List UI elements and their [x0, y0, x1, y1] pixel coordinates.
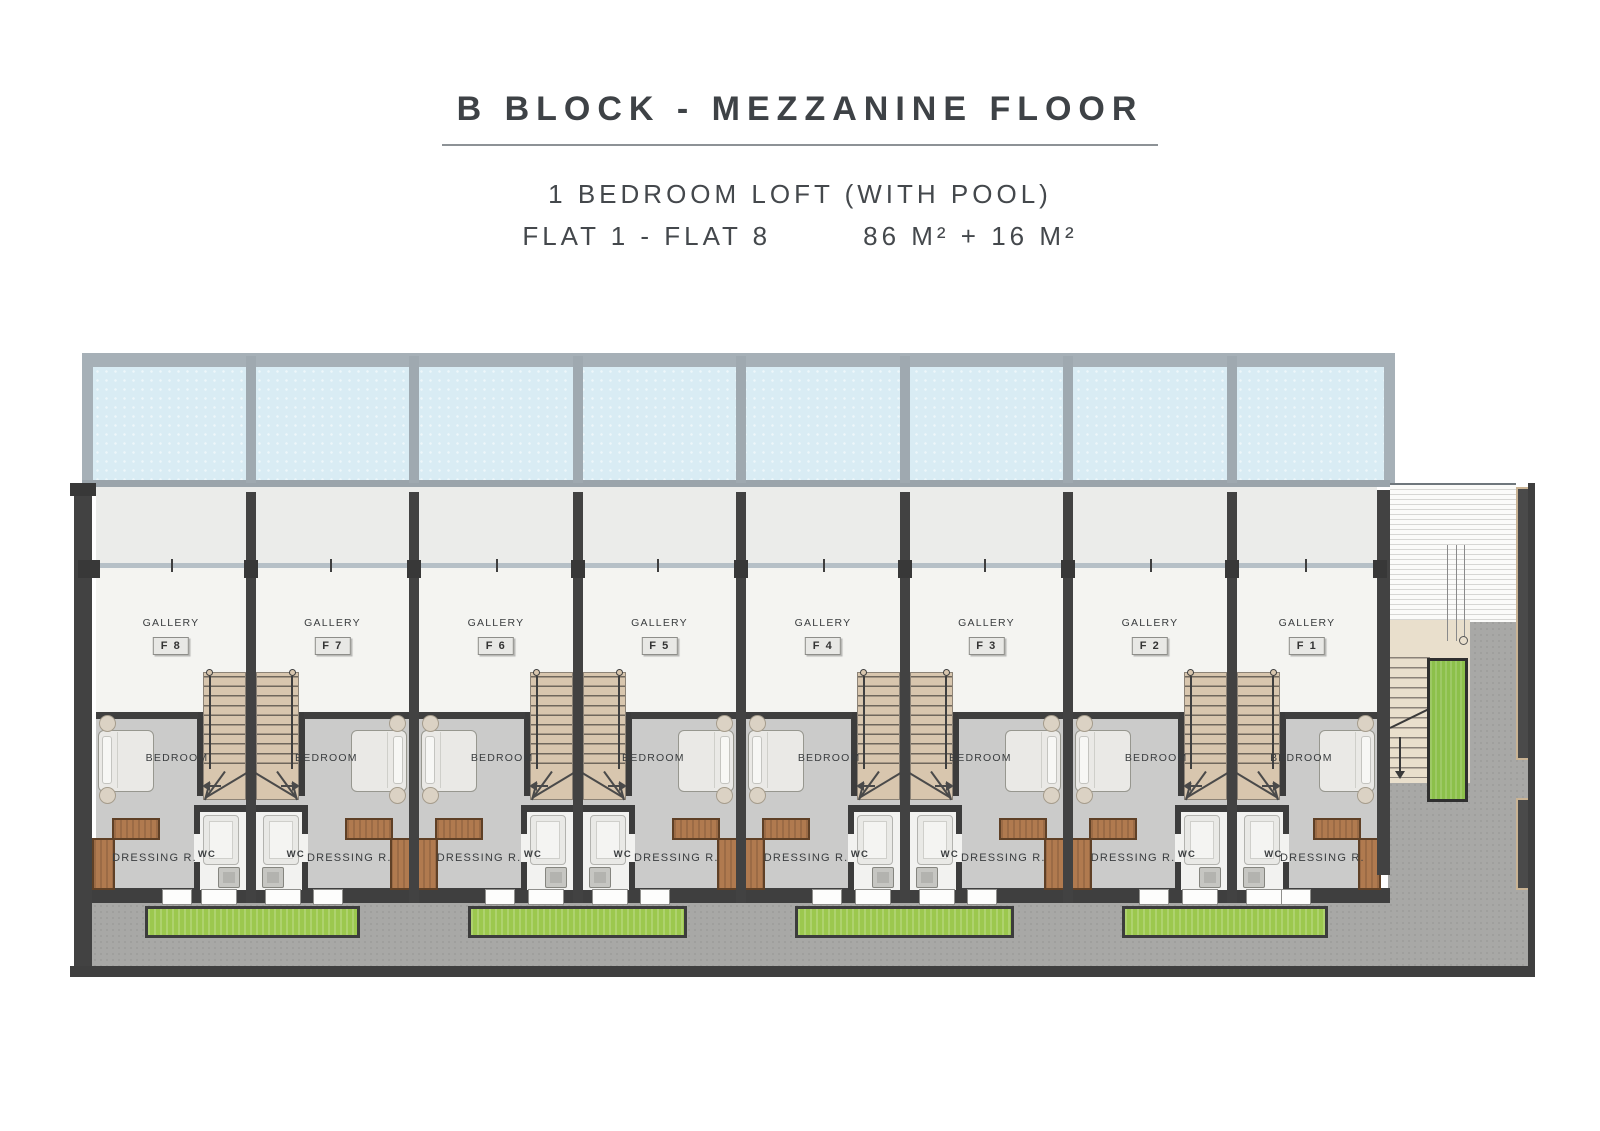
bed-pillow [1079, 736, 1089, 784]
stair-newel [616, 669, 623, 676]
dressing-label: DRESSING R. [437, 852, 522, 864]
stair-newel [1187, 669, 1194, 676]
bed-pillow [102, 736, 112, 784]
terrace-hatched [1390, 483, 1516, 622]
toilet [1243, 867, 1265, 888]
wc-wall-door-upper [629, 812, 635, 834]
glass-wall-post [1373, 560, 1387, 578]
unit-F1: GALLERYF 1BEDROOMDRESSING R.WC [1237, 487, 1377, 965]
wc-label: WC [524, 849, 542, 860]
wc-wall-door-upper [302, 812, 308, 834]
wc-room [256, 805, 308, 890]
flat-badge: F 1 [1289, 637, 1325, 655]
wc-wall-door-upper [848, 812, 854, 834]
party-wall [736, 492, 746, 903]
bedroom-label: BEDROOM [1270, 752, 1333, 764]
glass-wall-post [734, 560, 748, 578]
end-wall-right [1377, 490, 1390, 875]
window [1246, 889, 1282, 905]
unit-geometry [96, 487, 246, 965]
unit-stair [1237, 672, 1280, 800]
nightstand [422, 787, 439, 804]
floor-plan: GALLERYF 8BEDROOMDRESSING R.WCGALLERYF 7… [0, 0, 1600, 1131]
dressing-label: DRESSING R. [1091, 852, 1176, 864]
bedroom-label: BEDROOM [146, 752, 209, 764]
dressing-label: DRESSING R. [112, 852, 197, 864]
wc-label: WC [1264, 849, 1282, 860]
wardrobe-top [762, 818, 810, 840]
wc-wall-door-lower [1283, 862, 1289, 890]
wc-label: WC [198, 849, 216, 860]
unit-stair [857, 672, 900, 800]
window [528, 889, 564, 905]
bed-duvet-line [440, 732, 441, 788]
bed-duvet-line [1355, 732, 1356, 788]
glass-wall-tick [658, 559, 660, 572]
wc-label: WC [851, 849, 869, 860]
window [592, 889, 628, 905]
nightstand [1043, 787, 1060, 804]
bed-pillow [393, 736, 403, 784]
flat-badge: F 2 [1132, 637, 1168, 655]
bed-duvet-line [387, 732, 388, 788]
wardrobe-side [92, 838, 115, 890]
window [812, 889, 842, 905]
glass-wall-post [244, 560, 258, 578]
nightstand [1357, 787, 1374, 804]
stair-rail [536, 676, 538, 769]
unit-geometry [1073, 487, 1227, 965]
toilet [589, 867, 611, 888]
wc-wall-door-lower [194, 862, 200, 890]
pool-mullion [409, 356, 419, 483]
unit-F3: GALLERYF 3BEDROOMDRESSING R.WC [910, 487, 1063, 965]
window [313, 889, 343, 905]
wc-wall-top [583, 805, 635, 812]
unit-stair [1184, 672, 1227, 800]
boundary-right [1528, 483, 1535, 976]
party-wall [573, 492, 583, 903]
wc-wall-door-upper [521, 812, 527, 834]
bed-duvet-line [767, 732, 768, 788]
stair-newel [206, 669, 213, 676]
wc-wall-door-upper [194, 812, 200, 834]
toilet [218, 867, 240, 888]
bedroom-label: BEDROOM [798, 752, 861, 764]
stair-newel [860, 669, 867, 676]
flat-badge: F 3 [968, 637, 1004, 655]
glass-wall-tick [1305, 559, 1307, 572]
wc-wall-top [910, 805, 962, 812]
window [485, 889, 515, 905]
window [855, 889, 891, 905]
bedroom-label: BEDROOM [622, 752, 685, 764]
wc-wall-door-upper [956, 812, 962, 834]
unit-stair [910, 672, 953, 800]
boundary-bottom [70, 966, 1535, 977]
stair-arrow-head [1183, 781, 1191, 791]
pool-frame-left [82, 353, 93, 483]
pool-mullion [736, 356, 746, 483]
stair-rail [945, 676, 947, 769]
bedroom-label: BEDROOM [471, 752, 534, 764]
nightstand [99, 715, 116, 732]
wc-wall-top [1175, 805, 1227, 812]
wardrobe-top [112, 818, 160, 840]
unit-stair [256, 672, 299, 800]
wc-wall-door-lower [302, 862, 308, 890]
wc-wall-top [521, 805, 573, 812]
dressing-label: DRESSING R. [1280, 852, 1365, 864]
toilet-seat [594, 872, 606, 883]
bed-duvet-line [1041, 732, 1042, 788]
stair-newel [1270, 669, 1277, 676]
party-wall [1227, 492, 1237, 903]
wc-wall-top [848, 805, 900, 812]
nightstand [389, 787, 406, 804]
window [265, 889, 301, 905]
bed-pillow [752, 736, 762, 784]
stair-newel [289, 669, 296, 676]
nightstand [1357, 715, 1374, 732]
terrace-glass-wall [583, 563, 736, 568]
nightstand [1076, 715, 1093, 732]
bed-pillow [1361, 736, 1371, 784]
wc-wall-door-lower [956, 862, 962, 890]
window [967, 889, 997, 905]
glass-wall-post [1225, 560, 1239, 578]
glass-wall-tick [496, 559, 498, 572]
flat-badge: F 4 [805, 637, 841, 655]
bed [678, 730, 734, 792]
window [1139, 889, 1169, 905]
wardrobe-top [1313, 818, 1361, 840]
gallery-label: GALLERY [143, 617, 200, 629]
stair-detail-line [1447, 545, 1448, 641]
toilet [545, 867, 567, 888]
unit-F4: GALLERYF 4BEDROOMDRESSING R.WC [746, 487, 900, 965]
gallery-label: GALLERY [304, 617, 361, 629]
bed [351, 730, 407, 792]
stair-rail [291, 676, 293, 769]
nightstand [716, 715, 733, 732]
glass-wall-post [78, 560, 100, 578]
bed-duvet-line [1094, 732, 1095, 788]
gallery-label: GALLERY [958, 617, 1015, 629]
terrace-glass-wall [1237, 563, 1377, 568]
stair-newel [943, 669, 950, 676]
window [201, 889, 237, 905]
bed [748, 730, 804, 792]
dressing-label: DRESSING R. [764, 852, 849, 864]
dressing-label: DRESSING R. [307, 852, 392, 864]
bed-pillow [1047, 736, 1057, 784]
nightstand [749, 715, 766, 732]
wc-label: WC [614, 849, 632, 860]
toilet-seat [877, 872, 889, 883]
unit-stair [583, 672, 626, 800]
unit-geometry [583, 487, 736, 965]
stair-rail [863, 676, 865, 769]
wc-wall-top [1237, 805, 1289, 812]
toilet [1199, 867, 1221, 888]
wc-room [1175, 805, 1227, 890]
wardrobe-top [999, 818, 1047, 840]
wc-label: WC [287, 849, 305, 860]
outer-wall-left-cap [70, 483, 96, 496]
wardrobe-top [672, 818, 720, 840]
window [1182, 889, 1218, 905]
terrace-glass-wall [910, 563, 1063, 568]
flat-badge: F 8 [153, 637, 189, 655]
glass-wall-post [571, 560, 585, 578]
unit-F2: GALLERYF 2BEDROOMDRESSING R.WC [1073, 487, 1227, 965]
nightstand [716, 787, 733, 804]
bed-duvet-line [117, 732, 118, 788]
unit-geometry [256, 487, 409, 965]
window [1281, 889, 1311, 905]
dressing-label: DRESSING R. [634, 852, 719, 864]
nightstand [389, 715, 406, 732]
bedroom-label: BEDROOM [295, 752, 358, 764]
unit-geometry [910, 487, 1063, 965]
nightstand [422, 715, 439, 732]
wc-wall-top [256, 805, 308, 812]
wc-room [194, 805, 246, 890]
gallery-label: GALLERY [631, 617, 688, 629]
wc-room [848, 805, 900, 890]
stair-detail-line [1456, 545, 1457, 641]
window [640, 889, 670, 905]
flat-badge: F 7 [314, 637, 350, 655]
pool-mullion [1227, 356, 1237, 483]
unit-F8: GALLERYF 8BEDROOMDRESSING R.WC [96, 487, 246, 965]
unit-stair [530, 672, 573, 800]
pool-frame-right [1384, 353, 1395, 483]
glass-wall-post [898, 560, 912, 578]
stair-arrow-head [529, 781, 537, 791]
wardrobe-top [345, 818, 393, 840]
bed [1005, 730, 1061, 792]
unit-geometry [1237, 487, 1377, 965]
party-wall [246, 492, 256, 903]
wc-label: WC [941, 849, 959, 860]
party-wall [409, 492, 419, 903]
window [162, 889, 192, 905]
party-wall [1063, 492, 1073, 903]
wc-wall-door-lower [521, 862, 527, 890]
wc-wall-door-upper [1283, 812, 1289, 834]
toilet [872, 867, 894, 888]
wc-wall-door-lower [1175, 862, 1181, 890]
bed-pillow [720, 736, 730, 784]
bed [1075, 730, 1131, 792]
glass-wall-post [1061, 560, 1075, 578]
glass-wall-tick [331, 559, 333, 572]
terrace-glass-wall [256, 563, 409, 568]
stair-arrow-head [202, 781, 210, 791]
gallery-label: GALLERY [468, 617, 525, 629]
gallery-label: GALLERY [1122, 617, 1179, 629]
unit-geometry [746, 487, 900, 965]
stair-rail [1190, 676, 1192, 769]
pool-mullion [900, 356, 910, 483]
flat-badge: F 5 [641, 637, 677, 655]
bed-pillow [425, 736, 435, 784]
stair-rail [209, 676, 211, 769]
toilet-seat [921, 872, 933, 883]
wc-wall-door-lower [629, 862, 635, 890]
nightstand [1076, 787, 1093, 804]
wardrobe-top [435, 818, 483, 840]
wc-wall-door-lower [848, 862, 854, 890]
window [919, 889, 955, 905]
gallery-label: GALLERY [1279, 617, 1336, 629]
nightstand [749, 787, 766, 804]
glass-wall-post [407, 560, 421, 578]
toilet [916, 867, 938, 888]
unit-F7: GALLERYF 7BEDROOMDRESSING R.WC [256, 487, 409, 965]
wc-room [910, 805, 962, 890]
wc-room [1237, 805, 1289, 890]
nightstand [99, 787, 116, 804]
glass-wall-tick [823, 559, 825, 572]
stair-detail-line [1464, 545, 1465, 641]
glass-wall-tick [985, 559, 987, 572]
toilet-seat [267, 872, 279, 883]
glass-wall-tick [171, 559, 173, 572]
wardrobe-top [1089, 818, 1137, 840]
stair-arrow-down [1395, 771, 1405, 779]
planter-strip [1427, 658, 1468, 802]
toilet-seat [1248, 872, 1260, 883]
gallery-label: GALLERY [795, 617, 852, 629]
unit-geometry [419, 487, 573, 965]
dressing-label: DRESSING R. [961, 852, 1046, 864]
nightstand [1043, 715, 1060, 732]
wc-wall-top [194, 805, 246, 812]
pool-mullion [246, 356, 256, 483]
stair-rail [618, 676, 620, 769]
toilet-seat [550, 872, 562, 883]
bed-duvet-line [714, 732, 715, 788]
bedroom-label: BEDROOM [949, 752, 1012, 764]
stair-newel [533, 669, 540, 676]
wc-room [521, 805, 573, 890]
toilet-seat [1204, 872, 1216, 883]
bed [421, 730, 477, 792]
bedroom-label: BEDROOM [1125, 752, 1188, 764]
stair-direction-line [1399, 737, 1401, 773]
wc-label: WC [1178, 849, 1196, 860]
pool-mullion [573, 356, 583, 483]
pool-mullion [1063, 356, 1073, 483]
unit-F6: GALLERYF 6BEDROOMDRESSING R.WC [419, 487, 573, 965]
party-wall [900, 492, 910, 903]
wc-room [583, 805, 635, 890]
toilet [262, 867, 284, 888]
stair-arrow-head [856, 781, 864, 791]
glass-wall-tick [1150, 559, 1152, 572]
unit-stair [203, 672, 246, 800]
toilet-seat [223, 872, 235, 883]
wc-wall-door-upper [1175, 812, 1181, 834]
unit-F5: GALLERYF 5BEDROOMDRESSING R.WC [583, 487, 736, 965]
section-marker-circle [1459, 636, 1468, 645]
floor-plan-sheet: B BLOCK - MEZZANINE FLOOR 1 BEDROOM LOFT… [0, 0, 1600, 1131]
flat-badge: F 6 [478, 637, 514, 655]
